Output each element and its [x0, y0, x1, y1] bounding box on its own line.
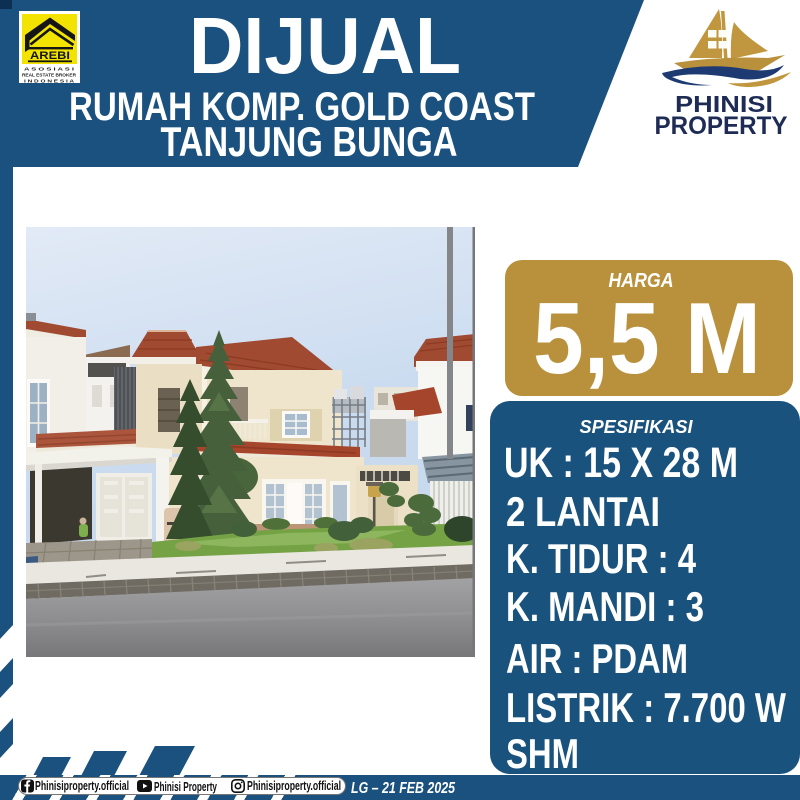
svg-text:I N D O N E S I A: I N D O N E S I A	[24, 79, 75, 84]
svg-text:REAL ESTATE BROKER: REAL ESTATE BROKER	[22, 73, 77, 78]
svg-text:AIR : PDAM: AIR : PDAM	[506, 635, 688, 682]
svg-text:TANJUNG BUNGA: TANJUNG BUNGA	[161, 122, 458, 160]
svg-text:SHM: SHM	[506, 730, 579, 774]
svg-text:Phinisi Property: Phinisi Property	[154, 779, 217, 794]
svg-text:2 LANTAI: 2 LANTAI	[506, 488, 660, 535]
svg-text:AREBI: AREBI	[30, 50, 70, 62]
svg-text:LG – 21 FEB 2025: LG – 21 FEB 2025	[351, 780, 456, 797]
svg-text:K. MANDI : 3: K. MANDI : 3	[506, 583, 704, 630]
svg-text:UK : 15 X 28 M: UK : 15 X 28 M	[504, 439, 738, 487]
svg-text:K. TIDUR : 4: K. TIDUR : 4	[506, 535, 697, 582]
svg-text:PROPERTY: PROPERTY	[655, 112, 788, 140]
svg-text:LISTRIK : 7.700 W: LISTRIK : 7.700 W	[506, 684, 786, 731]
svg-text:Phinisiproperty.official: Phinisiproperty.official	[35, 778, 129, 793]
svg-text:RUMAH KOMP. GOLD COAST: RUMAH KOMP. GOLD COAST	[69, 88, 535, 124]
svg-text:Phinisiproperty.official: Phinisiproperty.official	[247, 778, 341, 793]
svg-text:DIJUAL: DIJUAL	[189, 1, 461, 90]
svg-text:A S O S I A S I: A S O S I A S I	[24, 67, 74, 72]
svg-text:5,5 M: 5,5 M	[533, 285, 761, 390]
